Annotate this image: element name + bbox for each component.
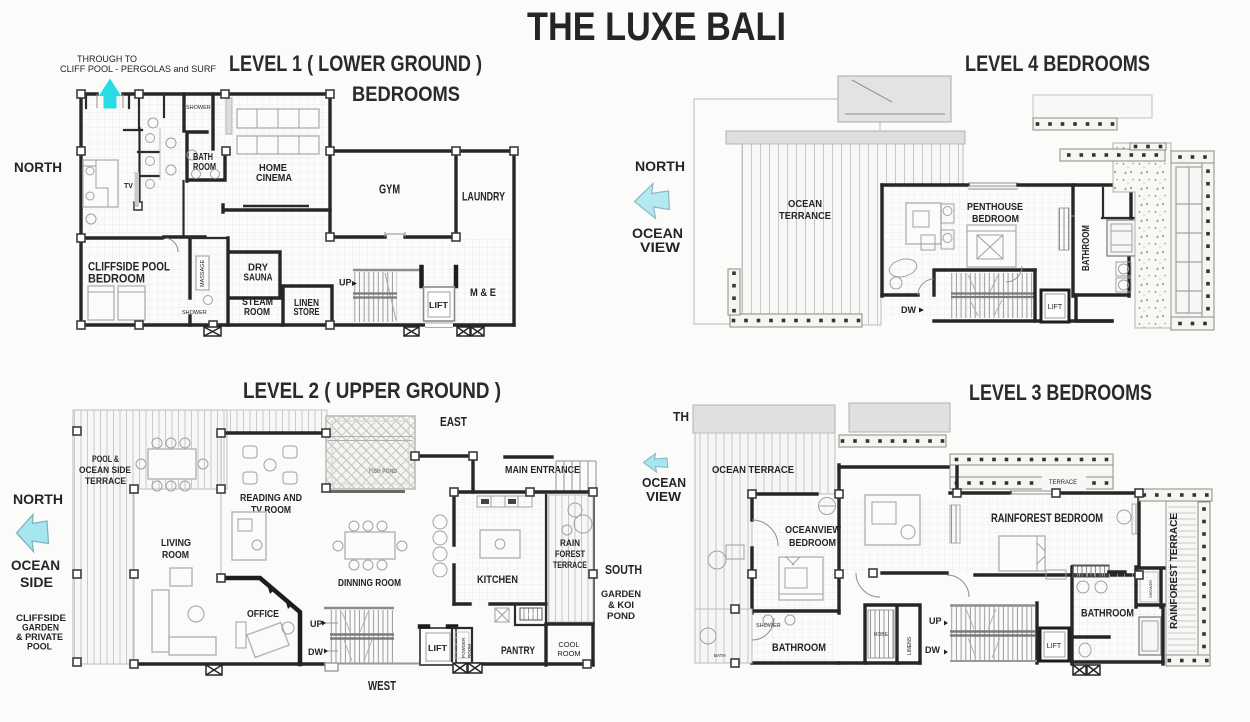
svg-text:UP: UP xyxy=(310,619,323,629)
svg-text:SHOWER: SHOWER xyxy=(1148,580,1153,598)
svg-text:SIDE: SIDE xyxy=(20,574,53,590)
svg-text:LAUNDRY: LAUNDRY xyxy=(462,190,505,204)
svg-text:BATHROOM: BATHROOM xyxy=(1081,225,1092,271)
svg-text:TERRACE: TERRACE xyxy=(1049,479,1078,486)
svg-text:ROOM: ROOM xyxy=(193,162,216,173)
svg-text:LEVEL 1 ( LOWER GROUND ): LEVEL 1 ( LOWER GROUND ) xyxy=(229,51,482,76)
svg-text:POWDER: POWDER xyxy=(461,637,466,658)
svg-text:SHOWER: SHOWER xyxy=(182,310,207,316)
svg-text:BATHROOM: BATHROOM xyxy=(772,642,826,654)
svg-text:GARDEN: GARDEN xyxy=(601,589,641,599)
svg-text:OCEAN: OCEAN xyxy=(642,475,686,490)
svg-text:LEVEL 3 BEDROOMS: LEVEL 3 BEDROOMS xyxy=(969,380,1152,405)
svg-text:NORTH: NORTH xyxy=(635,158,685,174)
svg-text:BEDROOMS: BEDROOMS xyxy=(352,83,460,106)
svg-text:DW: DW xyxy=(925,645,940,655)
svg-text:OCEAN TERRACE: OCEAN TERRACE xyxy=(712,465,794,476)
svg-text:LINENS: LINENS xyxy=(907,636,913,655)
svg-text:LIFT: LIFT xyxy=(1047,643,1062,650)
svg-text:POND: POND xyxy=(607,611,636,621)
svg-text:OCEAN: OCEAN xyxy=(11,557,60,573)
svg-text:EAST: EAST xyxy=(440,415,467,429)
svg-text:CINEMA: CINEMA xyxy=(256,173,292,184)
svg-text:& PRIVATE: & PRIVATE xyxy=(16,632,63,642)
svg-text:COOL: COOL xyxy=(558,640,579,649)
svg-text:TERRACE: TERRACE xyxy=(85,476,126,487)
svg-text:THE LUXE BALI: THE LUXE BALI xyxy=(527,5,786,49)
svg-text:ROBE: ROBE xyxy=(874,632,889,638)
svg-text:LEVEL 4 BEDROOMS: LEVEL 4 BEDROOMS xyxy=(965,51,1150,76)
svg-text:ROOM: ROOM xyxy=(467,644,472,658)
svg-text:FOREST: FOREST xyxy=(555,549,585,559)
svg-text:LIVING: LIVING xyxy=(161,538,191,549)
svg-text:OFFICE: OFFICE xyxy=(247,609,279,620)
svg-text:OCEAN: OCEAN xyxy=(788,199,822,210)
svg-text:POOL &: POOL & xyxy=(92,454,119,465)
svg-text:LEVEL 2 ( UPPER GROUND ): LEVEL 2 ( UPPER GROUND ) xyxy=(243,378,501,403)
svg-text:VIEW: VIEW xyxy=(646,489,682,504)
svg-text:NORTH: NORTH xyxy=(13,491,63,507)
svg-text:BEDROOM: BEDROOM xyxy=(88,272,145,286)
svg-text:DW: DW xyxy=(901,305,916,315)
svg-text:STORE: STORE xyxy=(294,307,320,318)
svg-text:ROOM: ROOM xyxy=(244,307,270,318)
svg-text:GYM: GYM xyxy=(379,182,400,197)
svg-text:ROOM: ROOM xyxy=(162,550,189,561)
svg-text:KITCHEN: KITCHEN xyxy=(477,574,518,586)
svg-text:RAINFOREST BEDROOM: RAINFOREST BEDROOM xyxy=(991,513,1103,525)
svg-text:UP: UP xyxy=(929,616,942,626)
svg-text:CLIFF POOL - PERGOLAS and SURF: CLIFF POOL - PERGOLAS and SURF xyxy=(60,64,216,75)
svg-text:TERRANCE: TERRANCE xyxy=(779,211,831,222)
svg-text:UP: UP xyxy=(339,278,352,288)
svg-text:VIEW: VIEW xyxy=(640,239,681,255)
svg-text:READING AND: READING AND xyxy=(240,493,302,504)
svg-text:WEST: WEST xyxy=(368,679,396,693)
svg-text:SOUTH: SOUTH xyxy=(605,563,642,577)
svg-text:FISH POND: FISH POND xyxy=(369,468,397,475)
svg-text:GARDEN: GARDEN xyxy=(22,623,59,633)
svg-text:RAIN: RAIN xyxy=(560,538,580,548)
svg-text:NORTH: NORTH xyxy=(14,159,62,175)
svg-text:DINNING ROOM: DINNING ROOM xyxy=(338,578,401,589)
svg-text:TH: TH xyxy=(673,409,689,424)
svg-text:BEDROOM: BEDROOM xyxy=(972,214,1019,225)
svg-text:TV: TV xyxy=(124,183,133,190)
svg-text:& KOI: & KOI xyxy=(608,600,634,610)
svg-text:RAINFOREST TERRACE: RAINFOREST TERRACE xyxy=(1169,513,1180,629)
svg-text:BEDROOM: BEDROOM xyxy=(789,538,836,549)
svg-text:LIFT: LIFT xyxy=(429,300,449,310)
svg-text:OCEANVIEW: OCEANVIEW xyxy=(785,525,842,536)
svg-text:BATHROOM: BATHROOM xyxy=(1081,608,1134,620)
svg-text:LIFT: LIFT xyxy=(428,643,448,653)
svg-text:TERRACE: TERRACE xyxy=(553,560,587,570)
svg-text:BATH: BATH xyxy=(714,653,726,658)
svg-text:SAUNA: SAUNA xyxy=(244,273,273,284)
svg-text:LIFT: LIFT xyxy=(1048,304,1063,311)
svg-text:DW: DW xyxy=(308,647,323,657)
svg-text:OCEAN SIDE: OCEAN SIDE xyxy=(79,465,131,476)
svg-text:CLIFFSIDE: CLIFFSIDE xyxy=(16,613,66,623)
svg-text:SHOWER: SHOWER xyxy=(186,105,211,111)
svg-text:POOL: POOL xyxy=(27,642,52,652)
svg-text:M & E: M & E xyxy=(470,287,496,299)
svg-text:LAVRY: LAVRY xyxy=(525,612,538,617)
svg-text:SHOWER: SHOWER xyxy=(756,623,781,629)
svg-text:MASSAGE: MASSAGE xyxy=(200,259,206,287)
svg-text:PANTRY: PANTRY xyxy=(501,645,536,657)
svg-text:MAIN ENTRANCE: MAIN ENTRANCE xyxy=(505,465,580,476)
svg-text:ROOM: ROOM xyxy=(557,649,580,658)
svg-text:PENTHOUSE: PENTHOUSE xyxy=(967,202,1023,213)
